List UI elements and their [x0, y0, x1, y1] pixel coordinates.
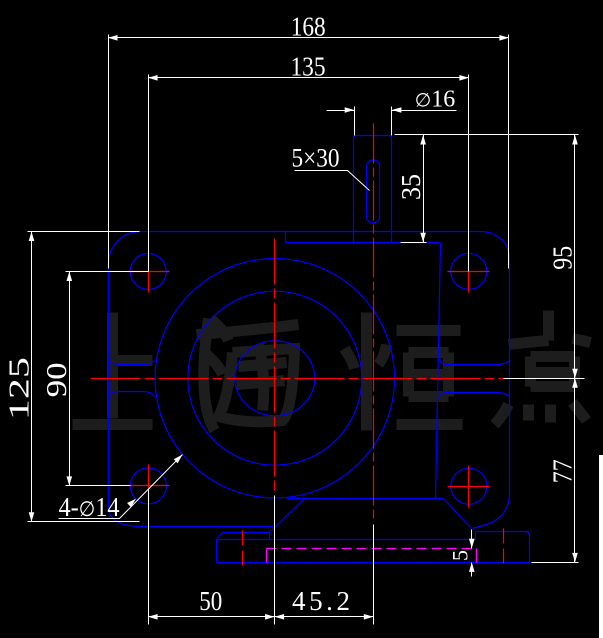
svg-text:50: 50	[199, 586, 222, 616]
svg-text:90: 90	[41, 362, 73, 397]
svg-text:125: 125	[4, 357, 36, 420]
svg-text:168: 168	[291, 12, 326, 42]
svg-text:4-∅14: 4-∅14	[59, 492, 120, 522]
svg-text:35: 35	[396, 174, 426, 200]
svg-text:5: 5	[448, 550, 473, 561]
svg-text:∅16: ∅16	[415, 87, 456, 113]
svg-text:77: 77	[548, 459, 578, 483]
svg-text:45.2: 45.2	[292, 586, 350, 616]
svg-text:95: 95	[548, 246, 578, 270]
svg-text:135: 135	[291, 52, 326, 82]
svg-text:5×30: 5×30	[292, 144, 340, 173]
